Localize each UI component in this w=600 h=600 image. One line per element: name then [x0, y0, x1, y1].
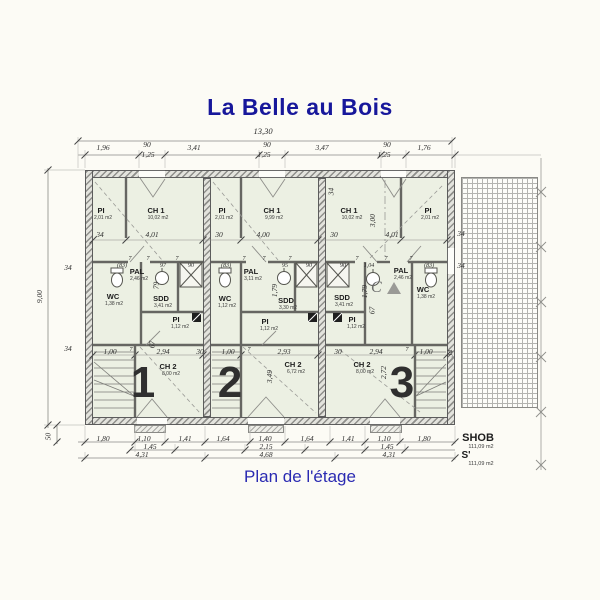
dim-label: 7 — [356, 256, 359, 262]
dim-label: (83) — [221, 263, 231, 269]
dim-label: 3,49 — [265, 370, 274, 383]
dim-label: 1,64 — [216, 434, 229, 443]
dim-label: 1,96 — [96, 143, 109, 152]
room-label: PI — [218, 206, 225, 215]
dim-label: 90 — [340, 263, 346, 269]
shob-area: 111,09 m2 — [468, 444, 493, 450]
shob-label: SHOB — [462, 432, 494, 444]
dim-label: 3,00 — [368, 214, 377, 227]
dim-label: 34 — [457, 261, 465, 270]
dim-label: 34 — [457, 229, 465, 238]
room-area: 1,12 m2 — [171, 324, 189, 330]
room-label: WC — [107, 292, 120, 301]
dim-label: 67 — [367, 307, 376, 315]
dim-label: 67 — [147, 341, 156, 349]
room-area: 1,12 m2 — [260, 326, 278, 332]
dim-label: 4,01 — [145, 230, 158, 239]
dim-label: 30 — [334, 347, 342, 356]
dim-label: 1,41 — [178, 434, 191, 443]
dim-label: 2,72 — [379, 366, 388, 379]
dim-label: 7 — [263, 256, 266, 262]
room-area: 3,41 m2 — [154, 303, 172, 309]
dim-total-width: 13,30 — [253, 126, 272, 136]
dim-label: 3,47 — [315, 143, 328, 152]
room-label: CH 1 — [340, 206, 357, 215]
room-area: 2,01 m2 — [421, 215, 439, 221]
room-label: SDD — [334, 293, 350, 302]
dim-label: 4,00 — [256, 230, 269, 239]
dim-label: 1,80 — [96, 434, 109, 443]
dim-total-height: 9,00 — [35, 290, 44, 303]
room-label: SDD — [278, 296, 294, 305]
shower-icon — [180, 263, 349, 287]
dim-label: 7 — [130, 347, 133, 353]
dim-label: 34 — [96, 230, 104, 239]
dim-label: 90 — [383, 140, 391, 149]
dim-label: 30 — [196, 347, 204, 356]
dim-label: 1,00 — [419, 347, 432, 356]
room-area: 2,46 m2 — [394, 275, 412, 281]
dim-label: 30 — [330, 230, 338, 239]
room-area: 1,38 m2 — [417, 294, 435, 300]
s-area: 111,09 m2 — [468, 461, 493, 467]
room-area: 8,00 m2 — [356, 369, 374, 375]
room-label: CH 2 — [159, 362, 176, 371]
dim-label: 1,80 — [417, 434, 430, 443]
dim-label: 1,25 — [141, 150, 154, 159]
dim-label: 7 — [248, 347, 251, 353]
dim-label: 1,04 — [364, 263, 375, 269]
dim-label: 1,00 — [221, 347, 234, 356]
dim-label: 4,31 — [382, 450, 395, 459]
room-label: PI — [348, 315, 355, 324]
room-area: 10,02 m2 — [148, 215, 169, 221]
room-label: PI — [97, 206, 104, 215]
dim-label: 1,25 — [257, 150, 270, 159]
room-area: 9,99 m2 — [265, 215, 283, 221]
dim-label: 4,31 — [135, 450, 148, 459]
dim-label: 90 — [306, 263, 312, 269]
dim-label: 2,94 — [156, 347, 169, 356]
dim-label: 7 — [289, 256, 292, 262]
room-area: 8,00 m2 — [162, 371, 180, 377]
dim-label: 34 — [64, 263, 72, 272]
room-label: PAL — [244, 267, 258, 276]
dim-label: 7 — [385, 256, 388, 262]
dim-label: (83) — [117, 263, 127, 269]
room-label: PI — [424, 206, 431, 215]
unit-number: 3 — [390, 358, 414, 408]
unit-number: 1 — [131, 358, 155, 408]
room-label: PAL — [130, 267, 144, 276]
dim-label: 1,79 — [360, 285, 369, 298]
room-area: 3,11 m2 — [244, 276, 262, 282]
dim-label: 34 — [445, 350, 454, 358]
dim-label: 90 — [143, 140, 151, 149]
dim-label: 1,64 — [300, 434, 313, 443]
room-label: CH 2 — [284, 360, 301, 369]
dim-label: 2,94 — [369, 347, 382, 356]
dim-label: 1,41 — [341, 434, 354, 443]
room-label: WC — [219, 294, 232, 303]
room-label: CH 1 — [147, 206, 164, 215]
room-area: 1,12 m2 — [218, 303, 236, 309]
dim-label: 95 — [282, 263, 288, 269]
extension-lines — [44, 137, 455, 460]
dim-label: 97 — [160, 263, 166, 269]
dim-label: 4,68 — [259, 450, 272, 459]
dim-label: 1,79 — [270, 284, 279, 297]
s-label: S' — [461, 450, 470, 461]
dim-label: 30 — [215, 230, 223, 239]
room-area: 3,41 m2 — [335, 302, 353, 308]
dim-label: 2,93 — [277, 347, 290, 356]
dim-label: 1,76 — [417, 143, 430, 152]
room-area: 1,38 m2 — [105, 301, 123, 307]
dim-label: 90 — [188, 263, 194, 269]
dim-bottom-offset: 50 — [43, 433, 52, 441]
dim-label: 7 — [243, 256, 246, 262]
dim-label: 90 — [263, 140, 271, 149]
room-area: 6,72 m2 — [287, 369, 305, 375]
room-area: 2,46 m2 — [130, 276, 148, 282]
dim-label: 1,00 — [103, 347, 116, 356]
dim-label: 7 — [129, 256, 132, 262]
section-triangle-icon — [387, 282, 401, 294]
unit-number: 2 — [218, 358, 242, 408]
room-label: SDD — [153, 294, 169, 303]
section-marker-c: C — [371, 279, 382, 297]
room-label: PI — [172, 315, 179, 324]
room-label: WC — [417, 285, 430, 294]
room-label: CH 2 — [353, 360, 370, 369]
dim-label: 1,25 — [377, 150, 390, 159]
dim-label: 7 — [410, 256, 413, 262]
dim-label: 7 — [147, 256, 150, 262]
room-label: PAL — [394, 266, 408, 275]
plan-linework — [0, 0, 600, 600]
room-area: 10,02 m2 — [342, 215, 363, 221]
dim-label: 3,41 — [187, 143, 200, 152]
room-area: 3,30 m2 — [279, 305, 297, 311]
dim-label: (83) — [424, 263, 434, 269]
room-label: PI — [261, 317, 268, 326]
floor-plan-page: { "title": "La Belle au Bois", "caption"… — [0, 0, 600, 600]
dim-label: 7 — [176, 256, 179, 262]
room-area: 1,12 m2 — [347, 324, 365, 330]
dim-label: 34 — [64, 344, 72, 353]
dim-label: 34 — [326, 188, 335, 196]
dim-label: 79 — [151, 282, 160, 290]
room-area: 2,01 m2 — [215, 215, 233, 221]
dim-label: 4,01 — [385, 230, 398, 239]
room-area: 2,01 m2 — [94, 215, 112, 221]
room-label: CH 1 — [263, 206, 280, 215]
dim-label: 7 — [406, 347, 409, 353]
